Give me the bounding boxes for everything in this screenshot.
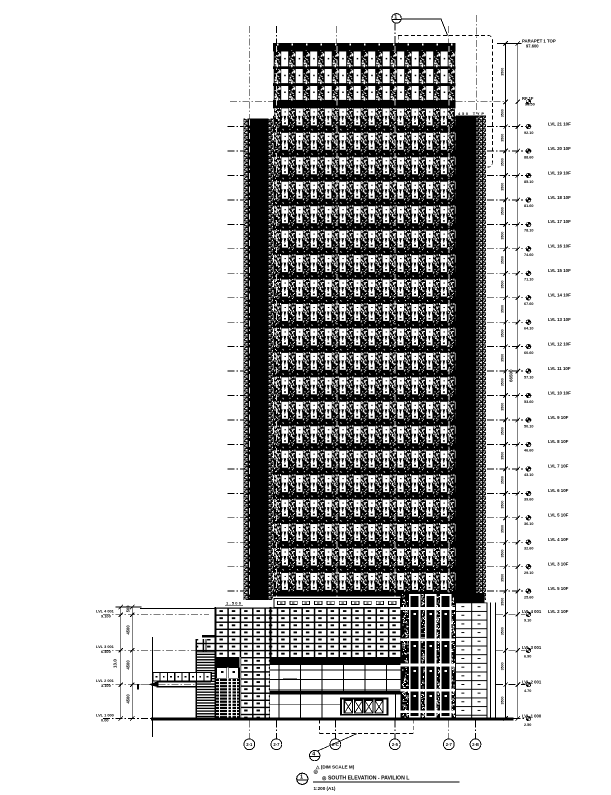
- svg-text:LVL 12 10F: LVL 12 10F: [548, 341, 571, 346]
- svg-text:3500: 3500: [501, 501, 505, 509]
- svg-text:LVL 16 10F: LVL 16 10F: [548, 244, 571, 249]
- svg-text:3500: 3500: [501, 158, 505, 166]
- svg-text:LVL 4 10F: LVL 4 10F: [548, 537, 569, 542]
- svg-text:50.10: 50.10: [524, 424, 534, 428]
- svg-text:3500: 3500: [501, 207, 505, 215]
- svg-text:3500: 3500: [501, 329, 505, 337]
- svg-text:◎ SOUTH ELEVATION - PAVILION L: ◎ SOUTH ELEVATION - PAVILION L: [322, 775, 410, 781]
- svg-text:1: 1: [300, 775, 303, 781]
- svg-text:3500: 3500: [501, 574, 505, 582]
- svg-text:39.60: 39.60: [524, 498, 534, 502]
- svg-text:LVL 1 000: LVL 1 000: [522, 713, 542, 718]
- svg-text:81.60: 81.60: [524, 204, 534, 208]
- svg-text:3.100: 3.100: [101, 683, 111, 688]
- svg-text:3500: 3500: [501, 281, 505, 289]
- svg-text:71.10: 71.10: [524, 278, 534, 282]
- svg-text:78.10: 78.10: [524, 229, 534, 233]
- svg-text:4: 4: [312, 751, 315, 757]
- svg-text:3500: 3500: [501, 662, 505, 670]
- svg-text:85.10: 85.10: [524, 180, 534, 184]
- svg-text:3500: 3500: [501, 183, 505, 191]
- svg-text:3500: 3500: [501, 354, 505, 362]
- svg-text:△ (DIM SCALE M): △ (DIM SCALE M): [315, 765, 355, 770]
- svg-text:64.10: 64.10: [524, 327, 534, 331]
- svg-text:3500: 3500: [501, 598, 505, 606]
- svg-text:3500: 3500: [501, 427, 505, 435]
- svg-text:LVL 11 10F: LVL 11 10F: [548, 366, 571, 371]
- svg-text:LVL 4 001: LVL 4 001: [522, 609, 542, 614]
- svg-text:3500: 3500: [501, 305, 505, 313]
- svg-text:4500: 4500: [125, 625, 130, 635]
- svg-text:1:200 (A1): 1:200 (A1): [314, 786, 336, 791]
- svg-text:LVL 15 10F: LVL 15 10F: [548, 268, 571, 273]
- svg-text:88.60: 88.60: [524, 155, 534, 159]
- svg-text:36.10: 36.10: [524, 522, 534, 526]
- svg-text:LVL 9 10F: LVL 9 10F: [548, 415, 569, 420]
- svg-text:3500: 3500: [501, 256, 505, 264]
- svg-text:53.60: 53.60: [524, 400, 534, 404]
- svg-text:LVL 21 10F: LVL 21 10F: [548, 121, 571, 126]
- svg-text:LVL 13 10F: LVL 13 10F: [548, 317, 571, 322]
- svg-text:LVL 3 10F: LVL 3 10F: [548, 562, 569, 567]
- svg-text:9.100: 9.100: [101, 614, 111, 619]
- svg-text:LVL 7 10F: LVL 7 10F: [548, 464, 569, 469]
- svg-text:LVL 5 10F: LVL 5 10F: [548, 513, 569, 518]
- svg-text:92.10: 92.10: [524, 131, 534, 135]
- svg-text:1: 1: [394, 14, 397, 20]
- svg-text:LVL 17 10F: LVL 17 10F: [548, 219, 571, 224]
- svg-text:60.60: 60.60: [524, 351, 534, 355]
- svg-text:4500: 4500: [125, 694, 130, 704]
- svg-text:LVL 20 10F: LVL 20 10F: [548, 146, 571, 151]
- svg-text:LVL 5 10F: LVL 5 10F: [548, 586, 569, 591]
- svg-text:2-1: 2-1: [246, 742, 253, 747]
- svg-text:LVL 19 10F: LVL 19 10F: [548, 170, 571, 175]
- svg-text:4500: 4500: [125, 660, 130, 670]
- svg-text:6.90: 6.90: [524, 655, 531, 659]
- svg-text:RF 1F: RF 1F: [522, 96, 534, 101]
- svg-text:3500: 3500: [501, 697, 505, 705]
- svg-text:LVL 14 10F: LVL 14 10F: [548, 293, 571, 298]
- svg-text:2.50: 2.50: [524, 723, 531, 727]
- svg-text:13.0: 13.0: [113, 659, 118, 668]
- svg-text:LVL 2 001: LVL 2 001: [522, 679, 542, 684]
- svg-text:9.10: 9.10: [524, 619, 531, 623]
- svg-text:3500: 3500: [501, 627, 505, 635]
- svg-text:3500: 3500: [501, 452, 505, 460]
- svg-text:3500: 3500: [501, 68, 505, 76]
- svg-text:0.00: 0.00: [101, 717, 109, 722]
- svg-text:4.70: 4.70: [524, 689, 531, 693]
- svg-text:2-5: 2-5: [392, 742, 399, 747]
- svg-text:LVL 10 10F: LVL 10 10F: [548, 390, 571, 395]
- svg-text:LVL 2 10F: LVL 2 10F: [548, 609, 569, 614]
- svg-text:43.10: 43.10: [524, 473, 534, 477]
- svg-text:25.60: 25.60: [524, 595, 534, 599]
- svg-text:67.60: 67.60: [524, 302, 534, 306]
- svg-text:97.600: 97.600: [526, 44, 539, 49]
- svg-text:2-7: 2-7: [446, 742, 453, 747]
- svg-text:LVL 3 001: LVL 3 001: [522, 645, 542, 650]
- svg-text:LVL 18 10F: LVL 18 10F: [548, 195, 571, 200]
- svg-text:3500: 3500: [501, 109, 505, 117]
- svg-text:57.10: 57.10: [524, 375, 534, 379]
- svg-text:29.10: 29.10: [524, 571, 534, 575]
- svg-text:74.60: 74.60: [524, 253, 534, 257]
- svg-text:LVL 6 10F: LVL 6 10F: [548, 488, 569, 493]
- svg-text:6.400: 6.400: [101, 649, 111, 654]
- svg-text:46.60: 46.60: [524, 449, 534, 453]
- svg-text:500: 500: [125, 605, 130, 613]
- svg-text:2-B: 2-B: [472, 742, 479, 747]
- svg-text:LVL 8 10F: LVL 8 10F: [548, 439, 569, 444]
- svg-text:2-7: 2-7: [273, 742, 280, 747]
- svg-text:3500: 3500: [501, 403, 505, 411]
- svg-text:32.60: 32.60: [524, 547, 534, 551]
- svg-text:3500: 3500: [501, 232, 505, 240]
- svg-text:3500: 3500: [501, 525, 505, 533]
- svg-text:3500: 3500: [501, 476, 505, 484]
- svg-text:3500: 3500: [501, 134, 505, 142]
- svg-text:3500: 3500: [501, 550, 505, 558]
- svg-text:3500: 3500: [501, 378, 505, 386]
